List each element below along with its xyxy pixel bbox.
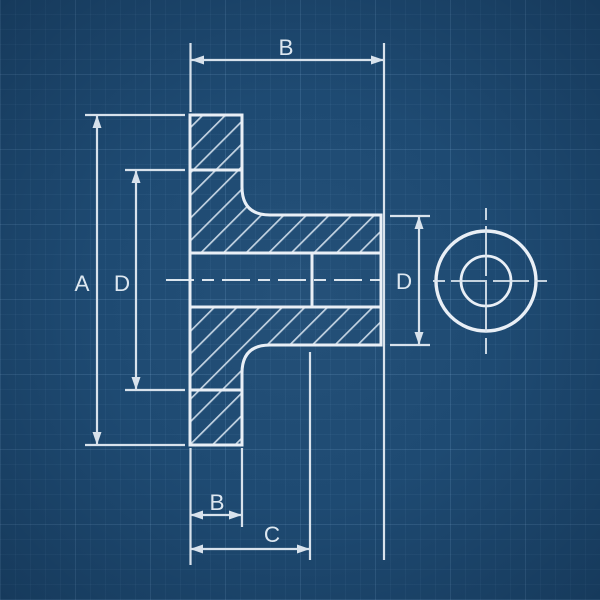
dim-c-arrow-left [190, 545, 203, 554]
dim-b-top: B [191, 35, 384, 65]
dim-b-top-arrow-left [191, 56, 204, 65]
flange-technical-drawing: A D B D [0, 0, 600, 600]
dim-d-right: D [390, 216, 430, 345]
dim-d-left-label: D [114, 271, 130, 296]
dim-d-right-arrow-bottom [415, 332, 424, 345]
dim-b-bottom-arrow-left [190, 511, 203, 520]
dim-d-right-arrow-top [415, 216, 424, 229]
dim-b-top-label: B [278, 35, 293, 60]
dim-b-bottom-label: B [209, 490, 224, 515]
dim-b-bottom: B [190, 490, 242, 520]
dim-d-left-arrow-top [132, 170, 141, 183]
dim-a-arrow-top [93, 115, 102, 128]
end-view [433, 208, 553, 354]
dim-c-arrow-right [297, 545, 310, 554]
dim-b-bottom-arrow-right [229, 511, 242, 520]
dim-c: C [190, 522, 310, 554]
dim-b-top-arrow-right [371, 56, 384, 65]
dim-c-label: C [264, 522, 280, 547]
blueprint-canvas: A D B D [0, 0, 600, 600]
dim-a-arrow-bottom [93, 432, 102, 445]
dim-d-left-arrow-bottom [132, 377, 141, 390]
dim-d-right-label: D [396, 269, 412, 294]
dim-a-label: A [74, 271, 89, 296]
